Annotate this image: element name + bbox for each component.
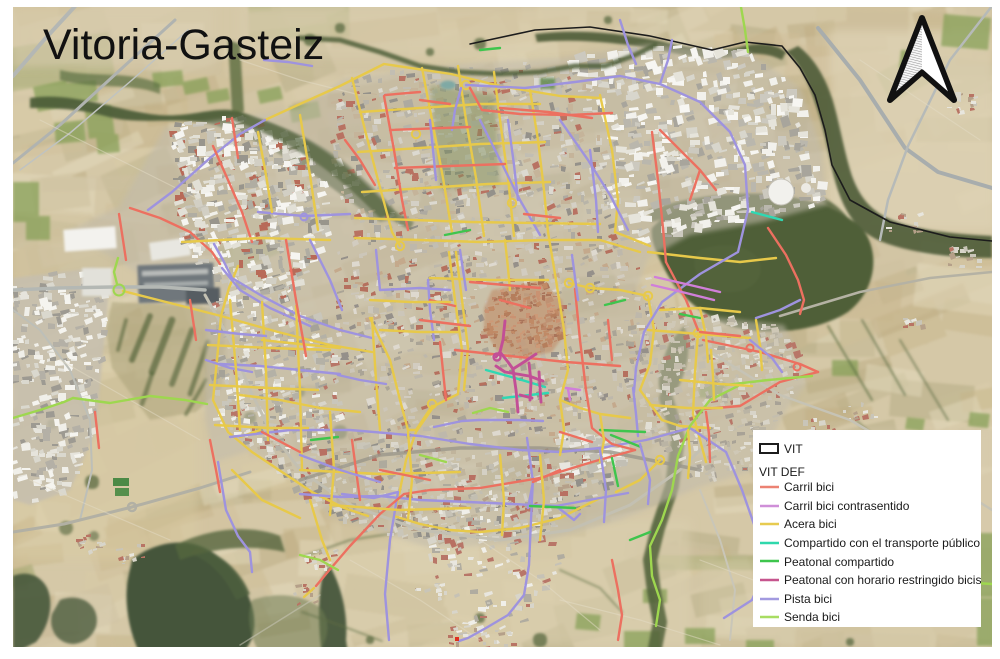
svg-text:Pista bici: Pista bici xyxy=(784,592,832,606)
svg-text:Compartido con el transporte p: Compartido con el transporte público xyxy=(784,536,980,550)
svg-text:Peatonal compartido: Peatonal compartido xyxy=(784,555,894,569)
svg-text:Acera bici: Acera bici xyxy=(784,517,837,531)
svg-text:Senda bici: Senda bici xyxy=(784,610,840,624)
svg-text:Vitoria-Gasteiz: Vitoria-Gasteiz xyxy=(43,21,324,69)
svg-text:Carril bici: Carril bici xyxy=(784,480,834,494)
svg-text:Carril bici contrasentido: Carril bici contrasentido xyxy=(784,499,910,513)
svg-text:Peatonal con horario restringi: Peatonal con horario restringido bicis xyxy=(784,573,981,587)
svg-text:VIT: VIT xyxy=(784,442,803,456)
svg-text:VIT DEF: VIT DEF xyxy=(759,465,805,479)
